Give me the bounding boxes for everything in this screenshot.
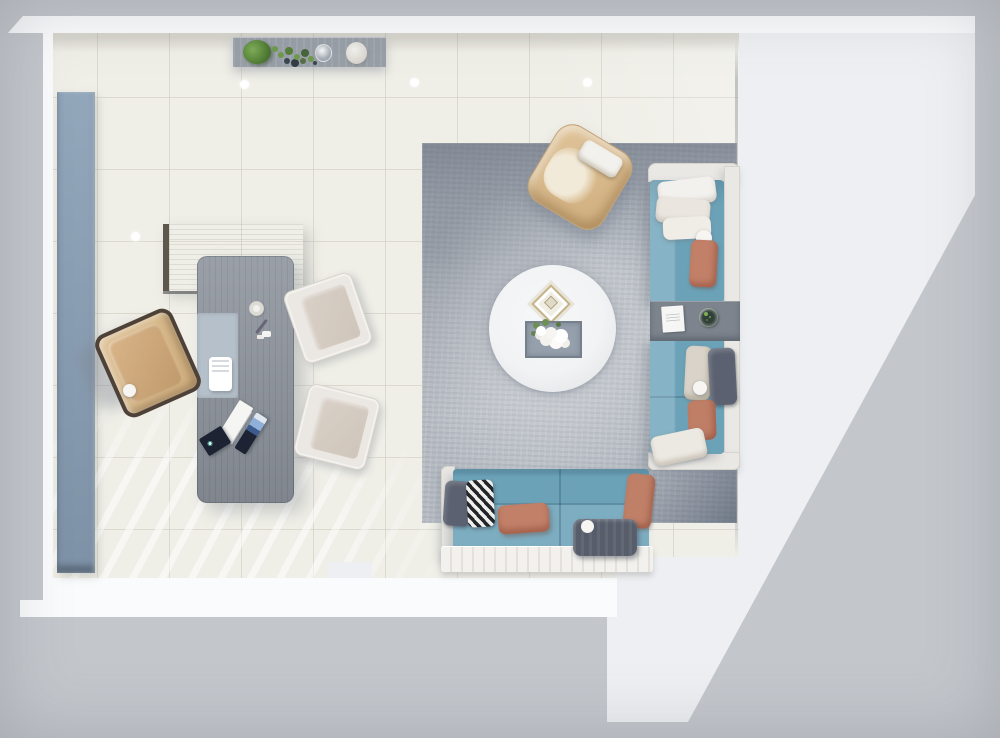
guest-chair-seat — [299, 283, 362, 351]
pillow-coral — [497, 502, 550, 534]
side-table-plant — [699, 308, 718, 327]
notebook-logo-icon — [207, 440, 214, 447]
floorplan-render — [0, 0, 1000, 738]
wall-bottom — [43, 578, 617, 617]
decor-ball — [693, 381, 707, 395]
white-vase-icon — [346, 42, 367, 64]
potted-plant-icon — [243, 40, 271, 64]
book-text-lines — [666, 314, 681, 323]
vine-plant-icon — [272, 46, 278, 52]
phone-screen — [212, 360, 229, 372]
sideboard-cabinet — [57, 92, 95, 573]
ceiling-light-dot — [131, 232, 140, 241]
ceiling-light-dot — [240, 80, 249, 89]
desk-cup — [249, 301, 264, 316]
pillow-striped — [466, 479, 495, 527]
ceiling-light-dot — [583, 78, 592, 87]
ceiling-light-dot — [410, 78, 419, 87]
note-papers — [262, 331, 271, 337]
guest-chair-seat — [309, 395, 370, 459]
decor-ball — [581, 520, 594, 533]
wall-top — [8, 16, 975, 33]
desk-phone — [209, 357, 232, 391]
plant-leaves-icon — [704, 312, 708, 316]
decor-diamond-center — [544, 296, 558, 310]
glass-cup-icon — [315, 44, 332, 62]
side-table-book — [661, 305, 685, 332]
chair-caster-ball — [123, 384, 136, 397]
office-chair-seat — [106, 322, 184, 405]
pillow-dark-gray — [708, 347, 738, 405]
wall-bottom-step — [20, 600, 43, 617]
white-flowers-icon — [536, 326, 546, 336]
pillow-coral — [689, 239, 718, 287]
